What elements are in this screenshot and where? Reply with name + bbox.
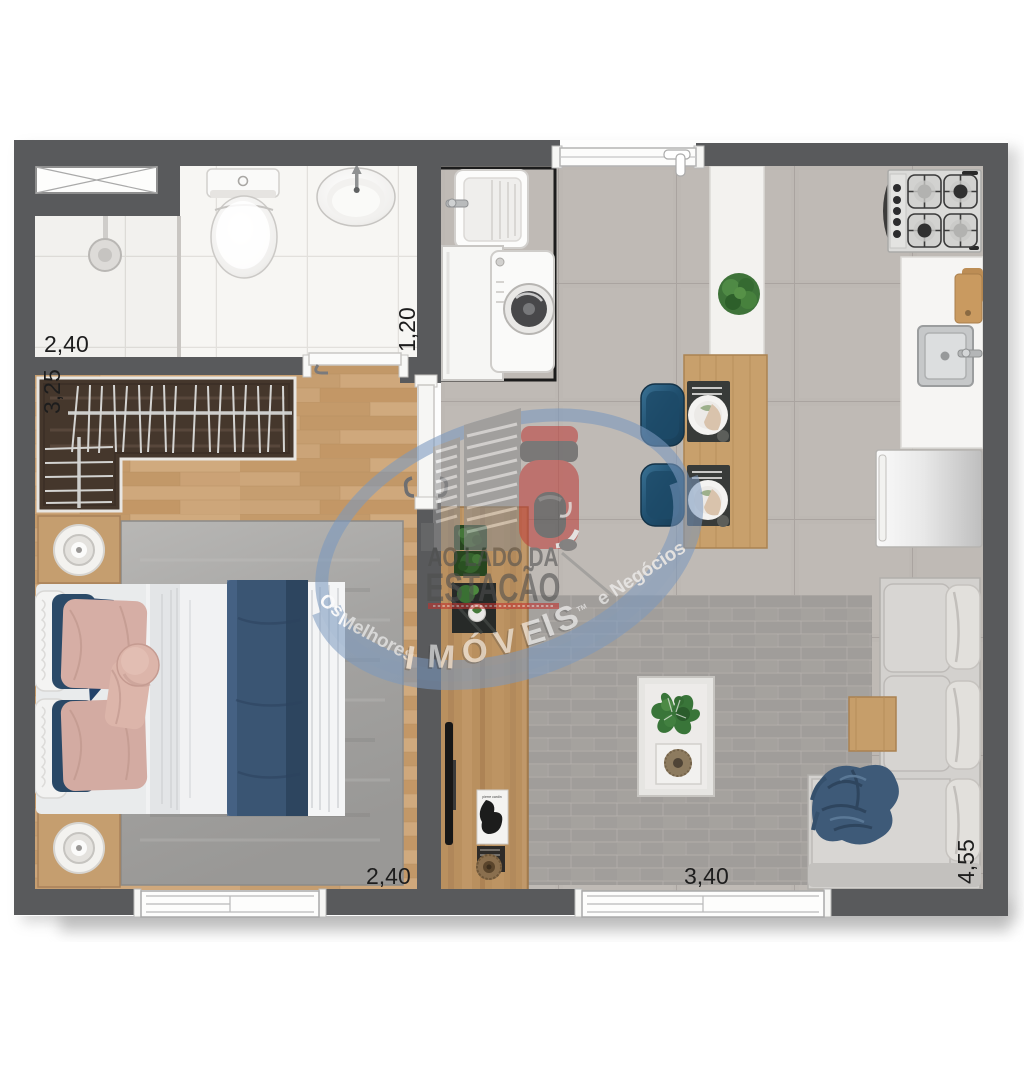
svg-text:2,40: 2,40	[366, 863, 411, 889]
svg-text:1,20: 1,20	[394, 307, 420, 352]
svg-text:3,25: 3,25	[39, 369, 65, 414]
svg-text:M: M	[427, 637, 456, 675]
svg-text:pierre cardin: pierre cardin	[482, 795, 502, 799]
svg-text:2,40: 2,40	[44, 331, 89, 357]
svg-text:4,55: 4,55	[953, 839, 979, 884]
svg-text:Ó: Ó	[460, 631, 489, 670]
svg-text:3,40: 3,40	[684, 863, 729, 889]
